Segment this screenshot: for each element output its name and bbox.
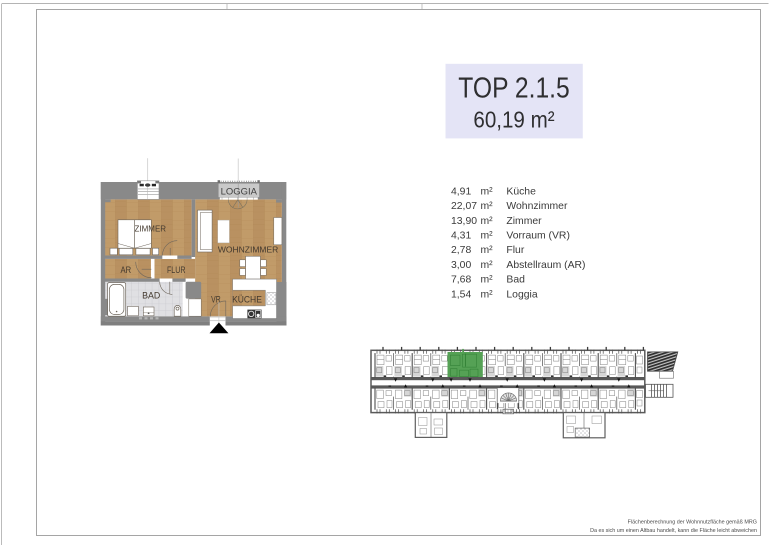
svg-text:AR: AR xyxy=(121,265,132,275)
svg-text:22,07: 22,07 xyxy=(451,201,477,212)
svg-text:Wohnzimmer: Wohnzimmer xyxy=(506,201,568,212)
svg-text:TOP 2.1.5: TOP 2.1.5 xyxy=(458,73,569,105)
svg-text:VR: VR xyxy=(211,294,221,304)
svg-text:Vorraum (VR): Vorraum (VR) xyxy=(506,231,570,242)
svg-text:3,00: 3,00 xyxy=(451,260,471,271)
svg-text:m²: m² xyxy=(481,260,494,271)
svg-text:m²: m² xyxy=(481,201,494,212)
svg-text:Zimmer: Zimmer xyxy=(506,216,542,227)
svg-text:LOGGIA: LOGGIA xyxy=(221,187,258,198)
svg-text:2,78: 2,78 xyxy=(451,245,471,256)
svg-text:WOHNZIMMER: WOHNZIMMER xyxy=(218,245,278,254)
svg-text:ZIMMER: ZIMMER xyxy=(135,224,167,234)
svg-text:Loggia: Loggia xyxy=(506,289,537,300)
svg-text:60,19 m²: 60,19 m² xyxy=(473,107,554,133)
svg-text:m²: m² xyxy=(481,245,494,256)
svg-text:m²: m² xyxy=(481,275,494,286)
svg-text:Flächenberechnung der Wohnnutz: Flächenberechnung der Wohnnutzfläche gem… xyxy=(628,520,757,526)
svg-text:m²: m² xyxy=(481,231,494,242)
svg-text:Flur: Flur xyxy=(506,245,524,256)
svg-text:13,90: 13,90 xyxy=(451,216,477,227)
svg-text:Küche: Küche xyxy=(506,186,536,197)
svg-text:KÜCHE: KÜCHE xyxy=(232,295,262,305)
svg-text:4,91: 4,91 xyxy=(451,186,471,197)
svg-text:4,31: 4,31 xyxy=(451,231,471,242)
svg-text:Bad: Bad xyxy=(506,275,525,286)
svg-text:FLUR: FLUR xyxy=(167,265,186,275)
svg-text:m²: m² xyxy=(481,289,494,300)
svg-text:1,54: 1,54 xyxy=(451,289,471,300)
svg-text:BAD: BAD xyxy=(142,291,161,301)
svg-text:m²: m² xyxy=(481,186,494,197)
svg-text:Da es sich um einen Altbau han: Da es sich um einen Altbau handelt, kann… xyxy=(590,528,757,534)
svg-text:Abstellraum (AR): Abstellraum (AR) xyxy=(506,260,585,271)
svg-text:m²: m² xyxy=(481,216,494,227)
svg-text:7,68: 7,68 xyxy=(451,275,471,286)
